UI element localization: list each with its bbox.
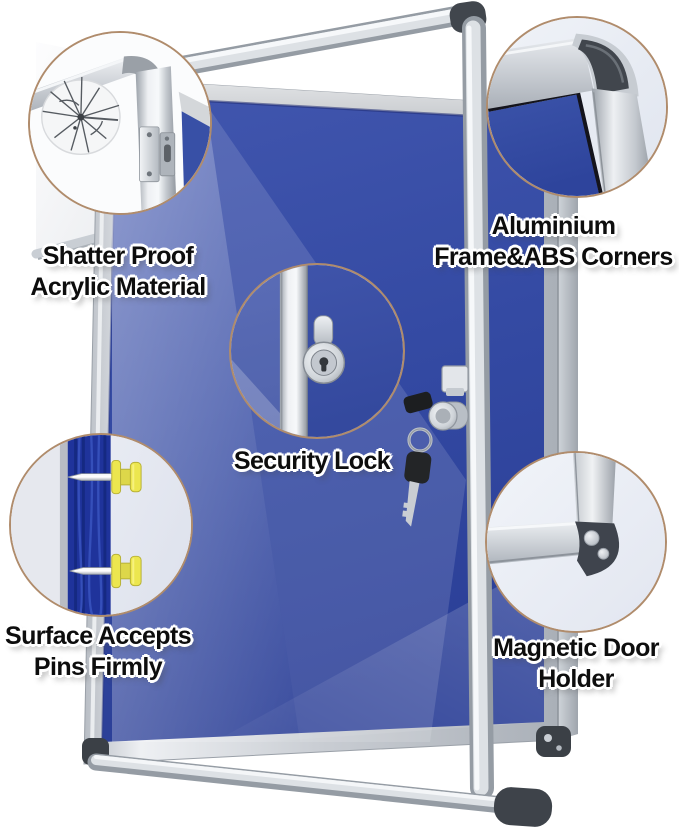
product-feature-image: Shatter Proof Acrylic Material Aluminium…	[0, 0, 679, 830]
magnet-corner-icon	[487, 453, 665, 631]
push-pins-icon	[11, 435, 191, 615]
label-aluminium-frame: Aluminium Frame&ABS Corners	[428, 211, 679, 273]
door-hinge	[140, 127, 175, 182]
door-edge-strip	[280, 265, 307, 437]
callout-pins-circle	[9, 433, 193, 617]
callout-security-lock-circle	[229, 263, 405, 439]
lock-cylinder-icon	[231, 265, 403, 437]
label-magnetic-holder: Magnetic Door Holder	[466, 633, 679, 695]
door-abs-corner-bottom	[493, 786, 554, 828]
label-security-lock: Security Lock	[212, 446, 412, 477]
magnet-dot	[598, 548, 609, 559]
magnet-dot	[584, 531, 599, 546]
cracked-acrylic-icon	[30, 33, 210, 213]
callout-shatter-proof-circle	[28, 31, 212, 215]
callout-aluminium-corner-circle	[486, 16, 668, 198]
frame-corner-icon	[488, 18, 666, 196]
callout-magnetic-holder-circle	[485, 451, 667, 633]
label-surface-pins: Surface Accepts Pins Firmly	[0, 621, 206, 683]
felt-cross-section	[68, 435, 111, 615]
label-shatter-proof: Shatter Proof Acrylic Material	[6, 241, 230, 303]
